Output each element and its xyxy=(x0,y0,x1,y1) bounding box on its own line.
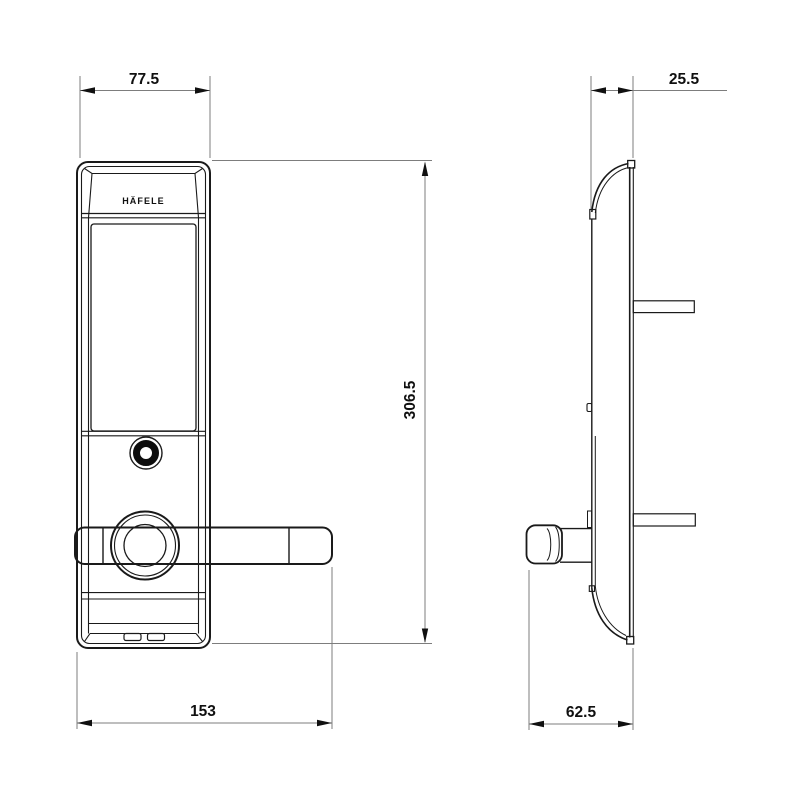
dim-overall-height: 306.5 xyxy=(212,161,432,644)
front-bottom-rim xyxy=(85,624,203,642)
dim-front-width: 77.5 xyxy=(80,71,210,158)
technical-drawing-page: HÄFELE xyxy=(0,0,800,800)
side-top-curve-inner xyxy=(595,168,628,214)
side-handle-neck xyxy=(560,529,592,563)
dim-handle-depth-label: 62.5 xyxy=(566,704,597,721)
handle-segment-lines xyxy=(103,528,289,565)
side-button-bump xyxy=(587,404,592,412)
dim-overall-height-label: 306.5 xyxy=(402,380,419,419)
side-handle-cap-face xyxy=(547,527,559,562)
key-button-black-ring xyxy=(137,444,156,463)
side-lever-handle xyxy=(527,525,592,563)
front-logo-divider xyxy=(82,214,205,218)
front-bottom-tab-left xyxy=(124,634,141,641)
side-top-step xyxy=(590,210,596,220)
brand-logo: HÄFELE xyxy=(122,196,165,206)
dim-side-thickness: 25.5 xyxy=(591,71,727,209)
side-bottom-cap xyxy=(627,637,634,645)
lock-technical-drawing: HÄFELE xyxy=(0,0,800,800)
dim-handle-depth: 62.5 xyxy=(529,570,633,730)
front-top-bevel xyxy=(85,169,203,174)
side-bottom-curve-inner xyxy=(595,586,626,636)
dim-front-width-label: 77.5 xyxy=(129,71,160,88)
side-view xyxy=(527,161,696,645)
rosette-inner xyxy=(124,525,166,567)
front-lower-divider xyxy=(82,593,205,599)
front-body-outer xyxy=(77,162,210,648)
front-panel-sides xyxy=(89,218,199,634)
rosette-outer xyxy=(111,512,179,580)
side-upper-post xyxy=(633,301,694,313)
front-bottom-tab-right xyxy=(148,634,165,641)
front-view: HÄFELE xyxy=(75,162,332,648)
side-handle-cap xyxy=(527,525,563,563)
side-top-curve-outer xyxy=(592,164,629,213)
dim-side-thickness-label: 25.5 xyxy=(669,71,700,88)
front-keypad-divider xyxy=(82,431,205,436)
side-lower-post xyxy=(633,514,695,526)
side-rosette-edge xyxy=(588,511,592,528)
front-body-inner xyxy=(82,167,206,644)
side-top-cap xyxy=(628,161,635,169)
front-keypad-glass xyxy=(91,224,196,431)
dim-overall-width-label: 153 xyxy=(190,703,216,720)
